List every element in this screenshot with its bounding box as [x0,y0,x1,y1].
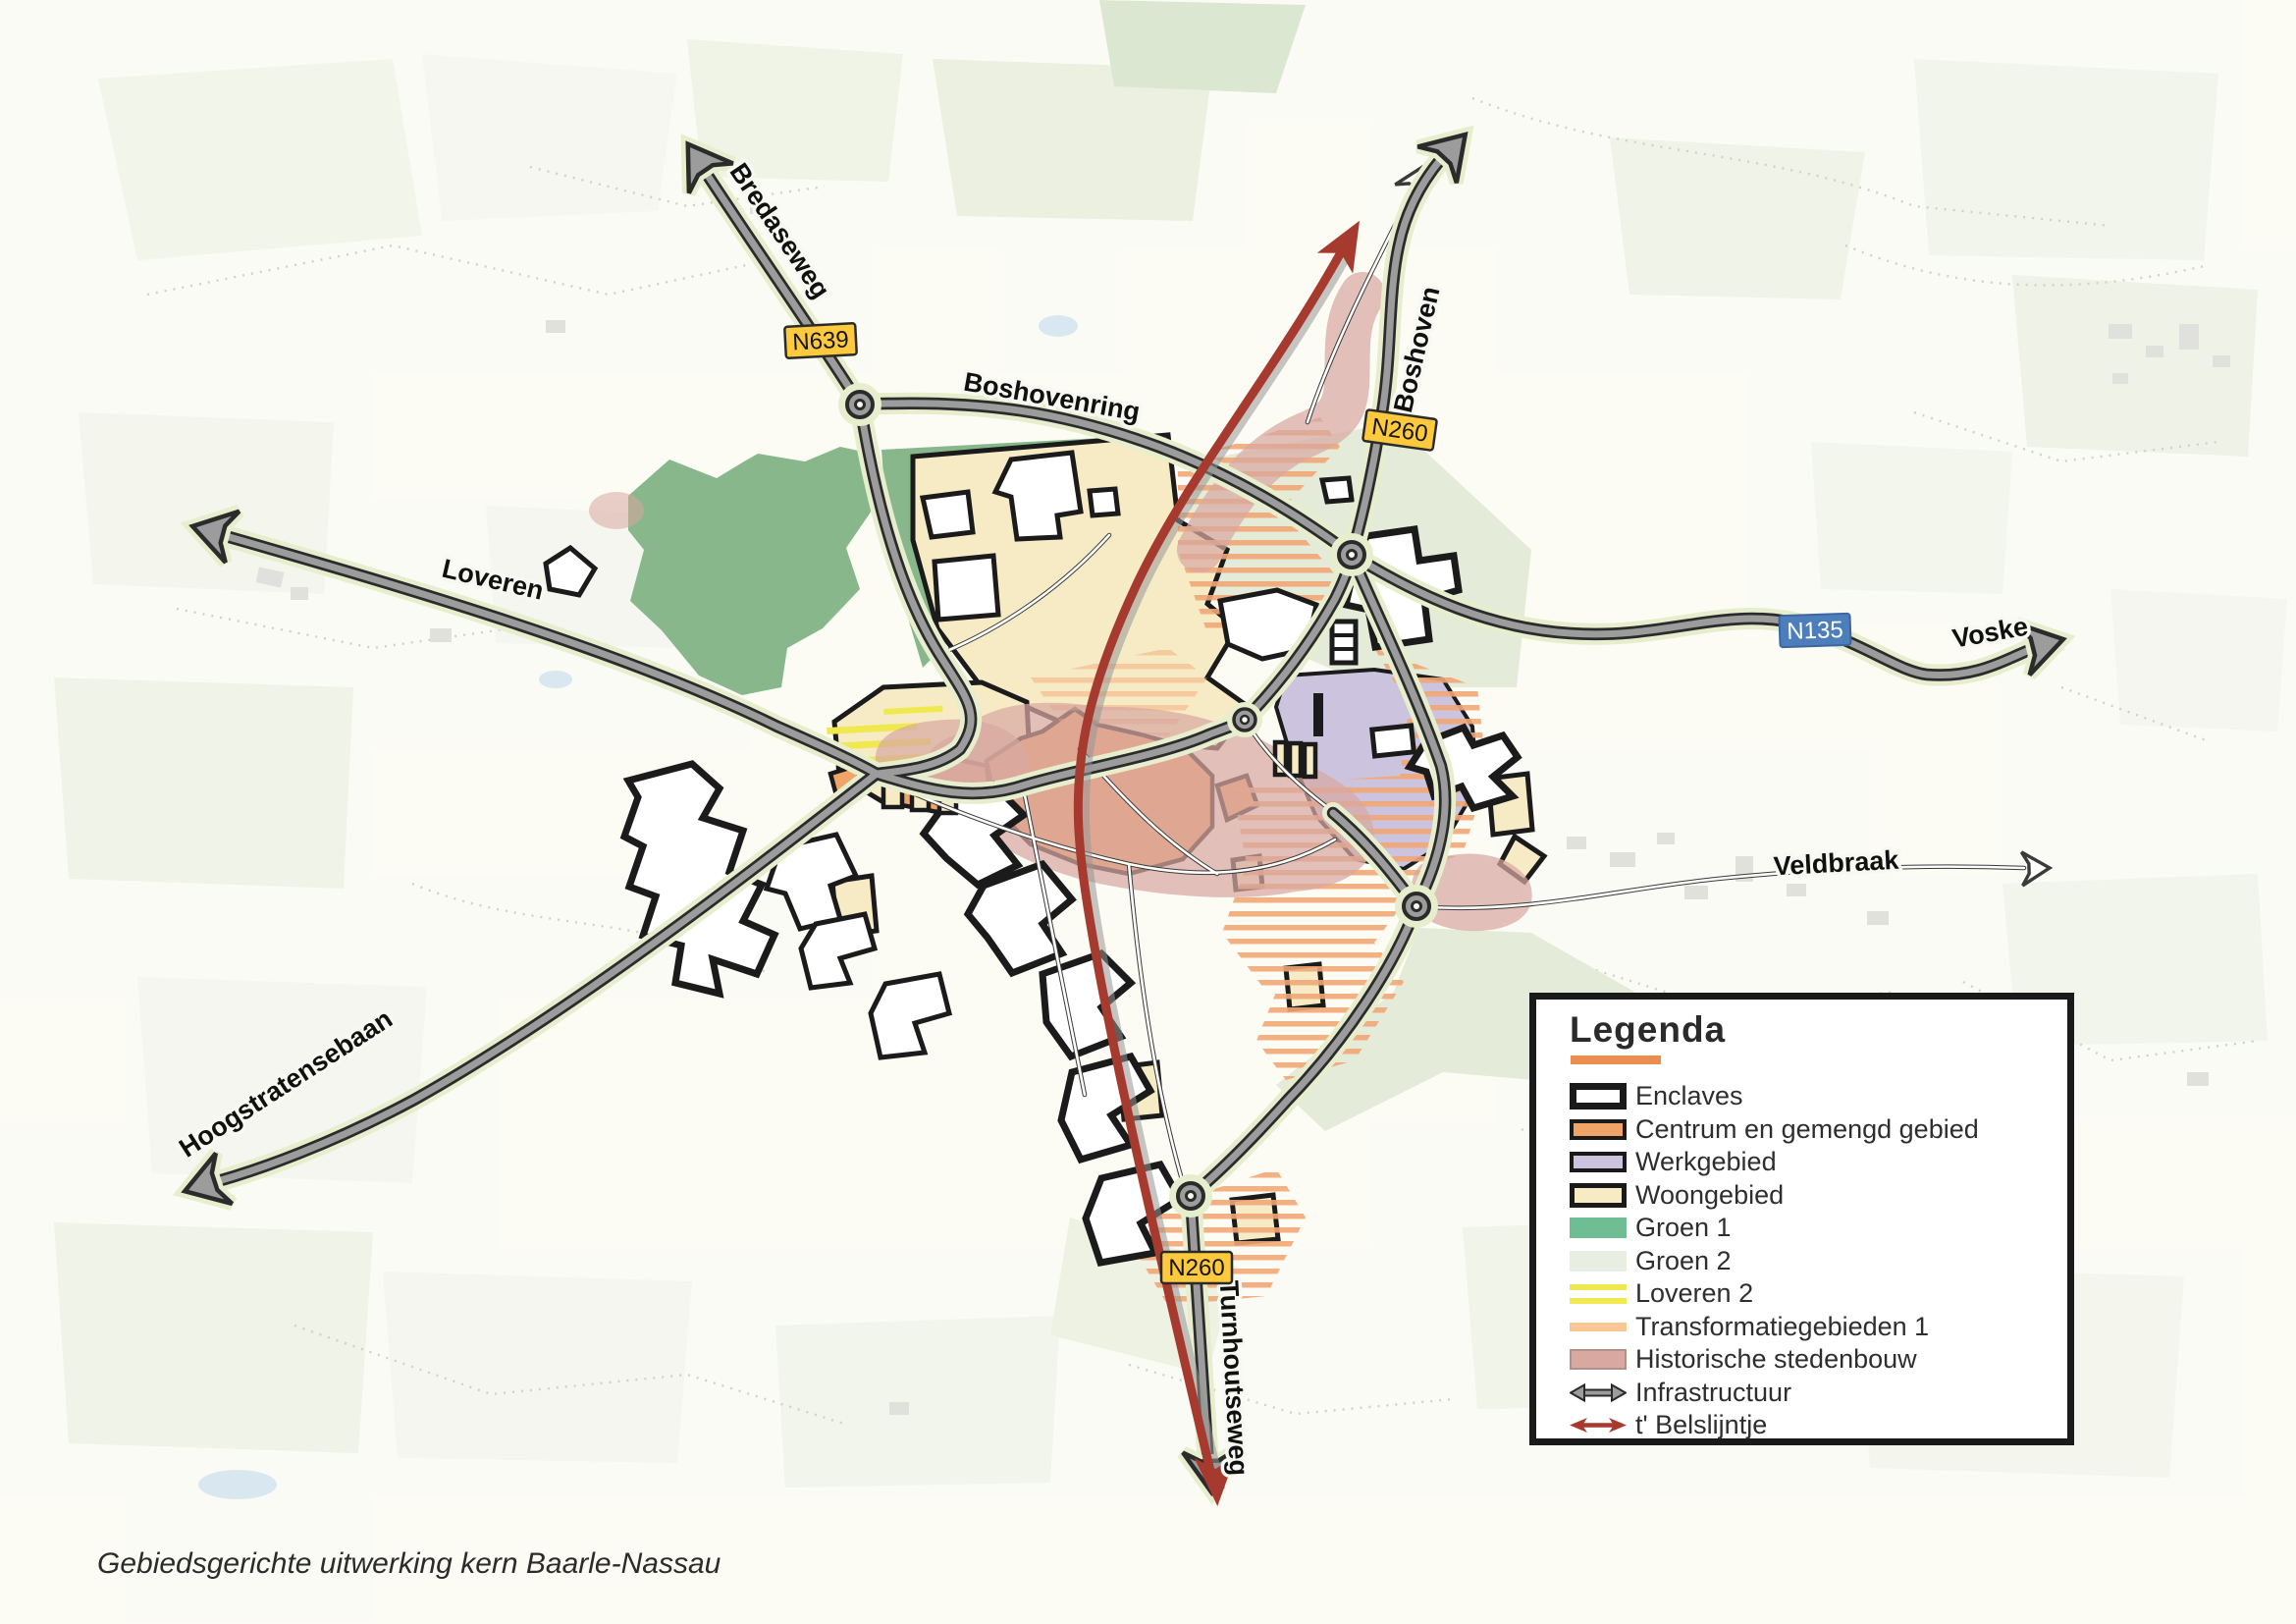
loveren2-swatch [1570,1284,1627,1304]
roundabout [1335,538,1368,571]
woongebied-swatch [1570,1183,1627,1208]
centrum-swatch [1570,1119,1627,1140]
roundabout [843,388,877,421]
legend-item-groen2: Groen 2 [1570,1245,2067,1278]
svg-text:N639: N639 [792,327,850,356]
infrastructuur-arrow-icon [1570,1382,1627,1403]
transformatiegebieden-swatch [1570,1323,1627,1331]
legend-item-belslijntje: t' Belslijntje [1570,1409,2067,1442]
legend-title: Legenda [1570,1009,2067,1051]
belslijntje-arrow-icon [1570,1415,1627,1435]
legend-item-enclaves: Enclaves [1570,1080,2067,1113]
svg-text:N135: N135 [1787,617,1843,645]
roundabout [1174,1179,1207,1213]
legend-item-centrum: Centrum en gemengd gebied [1570,1113,2067,1147]
legend-box: Legenda Enclaves Centrum en gemengd gebi… [1529,993,2074,1445]
badge-n260-south: N260 [1161,1252,1232,1283]
legend-item-infrastructuur: Infrastructuur [1570,1377,2067,1410]
badge-n135: N135 [1779,614,1850,647]
legend-title-underline [1571,1056,1661,1064]
legend-item-groen1: Groen 1 [1570,1212,2067,1245]
roundabout [1231,706,1258,733]
badge-n639: N639 [784,323,857,358]
legend-item-woongebied: Woongebied [1570,1179,2067,1213]
map-caption: Gebiedsgerichte uitwerking kern Baarle-N… [97,1547,721,1581]
enclaves-swatch [1570,1083,1627,1110]
legend-item-loveren2: Loveren 2 [1570,1277,2067,1311]
legend-item-transformatiegebieden: Transformatiegebieden 1 [1570,1311,2067,1344]
legend-item-historische-stedenbouw: Historische stedenbouw [1570,1343,2067,1377]
roundabout [1400,890,1433,923]
svg-text:N260: N260 [1168,1255,1224,1281]
legend-item-werkgebied: Werkgebied [1570,1146,2067,1179]
planning-map-page: Bredaseweg Boshovenring Boshoven Loveren… [0,0,2296,1624]
groen1-swatch [1570,1218,1627,1238]
historische-stedenbouw-swatch [1570,1349,1627,1370]
werkgebied-swatch [1570,1152,1627,1172]
groen2-swatch [1570,1251,1627,1272]
